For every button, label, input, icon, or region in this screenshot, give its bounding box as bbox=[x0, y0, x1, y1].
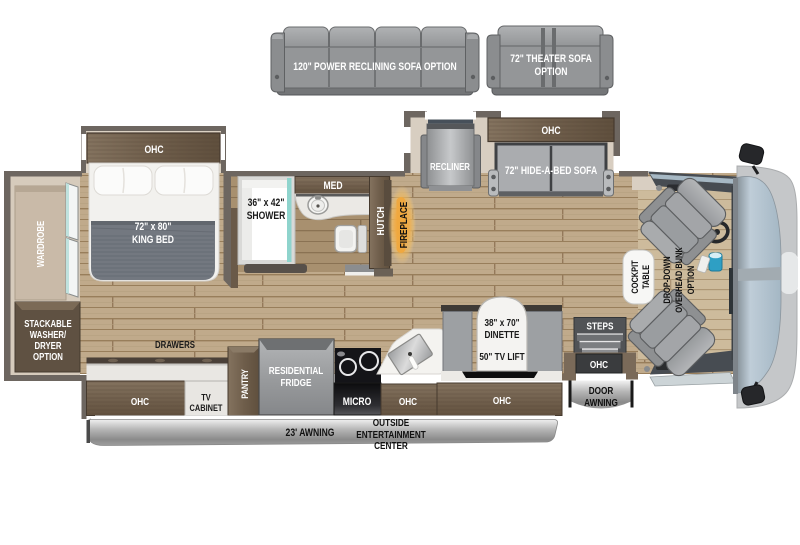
svg-text:DRAWERS: DRAWERS bbox=[155, 340, 195, 351]
svg-text:OHC: OHC bbox=[144, 144, 163, 156]
svg-text:FIREPLACE: FIREPLACE bbox=[398, 202, 410, 248]
svg-text:DOOR: DOOR bbox=[589, 385, 614, 397]
svg-text:23' AWNING: 23' AWNING bbox=[286, 427, 335, 439]
svg-text:72" THEATER SOFA: 72" THEATER SOFA bbox=[510, 53, 592, 65]
svg-text:OHC: OHC bbox=[493, 395, 512, 407]
svg-text:STACKABLE: STACKABLE bbox=[24, 319, 72, 330]
svg-text:72" x 80": 72" x 80" bbox=[135, 221, 172, 233]
svg-text:50" TV LIFT: 50" TV LIFT bbox=[479, 351, 525, 363]
svg-text:TABLE: TABLE bbox=[641, 265, 652, 289]
svg-text:RESIDENTIAL: RESIDENTIAL bbox=[269, 365, 324, 377]
svg-text:36" x 42": 36" x 42" bbox=[248, 197, 285, 209]
svg-text:COCKPIT: COCKPIT bbox=[630, 260, 641, 293]
svg-text:OPTION: OPTION bbox=[686, 266, 697, 295]
svg-text:KING BED: KING BED bbox=[132, 234, 174, 246]
svg-text:38" x 70": 38" x 70" bbox=[484, 317, 519, 329]
svg-text:MED: MED bbox=[323, 180, 342, 192]
svg-text:RECLINER: RECLINER bbox=[430, 162, 470, 173]
svg-text:MICRO: MICRO bbox=[343, 396, 372, 408]
svg-text:AWNING: AWNING bbox=[584, 397, 618, 409]
svg-text:OHC: OHC bbox=[399, 396, 418, 408]
svg-text:TV: TV bbox=[201, 393, 211, 404]
svg-text:CENTER: CENTER bbox=[374, 440, 408, 452]
svg-text:OHC: OHC bbox=[131, 396, 150, 408]
svg-text:FRIDGE: FRIDGE bbox=[281, 377, 312, 389]
svg-text:OPTION: OPTION bbox=[33, 352, 63, 363]
svg-text:OHC: OHC bbox=[590, 359, 609, 371]
svg-text:PANTRY: PANTRY bbox=[240, 369, 251, 399]
svg-text:OHC: OHC bbox=[541, 125, 560, 137]
svg-text:120" POWER RECLINING SOFA OPTI: 120" POWER RECLINING SOFA OPTION bbox=[293, 61, 456, 73]
svg-text:CABINET: CABINET bbox=[190, 403, 223, 414]
svg-text:WARDROBE: WARDROBE bbox=[36, 221, 47, 268]
svg-text:STEPS: STEPS bbox=[587, 321, 614, 333]
svg-text:DRYER: DRYER bbox=[35, 341, 63, 352]
svg-text:DROP-DOWN: DROP-DOWN bbox=[662, 256, 673, 303]
svg-text:DINETTE: DINETTE bbox=[485, 329, 520, 341]
svg-text:72" HIDE-A-BED SOFA: 72" HIDE-A-BED SOFA bbox=[505, 165, 597, 177]
svg-text:OVERHEAD BUNK: OVERHEAD BUNK bbox=[674, 247, 685, 313]
svg-text:SHOWER: SHOWER bbox=[247, 210, 286, 222]
svg-text:WASHER/: WASHER/ bbox=[30, 330, 67, 341]
svg-text:OUTSIDE: OUTSIDE bbox=[373, 417, 409, 429]
svg-text:OPTION: OPTION bbox=[535, 66, 568, 78]
svg-text:HUTCH: HUTCH bbox=[375, 207, 387, 236]
